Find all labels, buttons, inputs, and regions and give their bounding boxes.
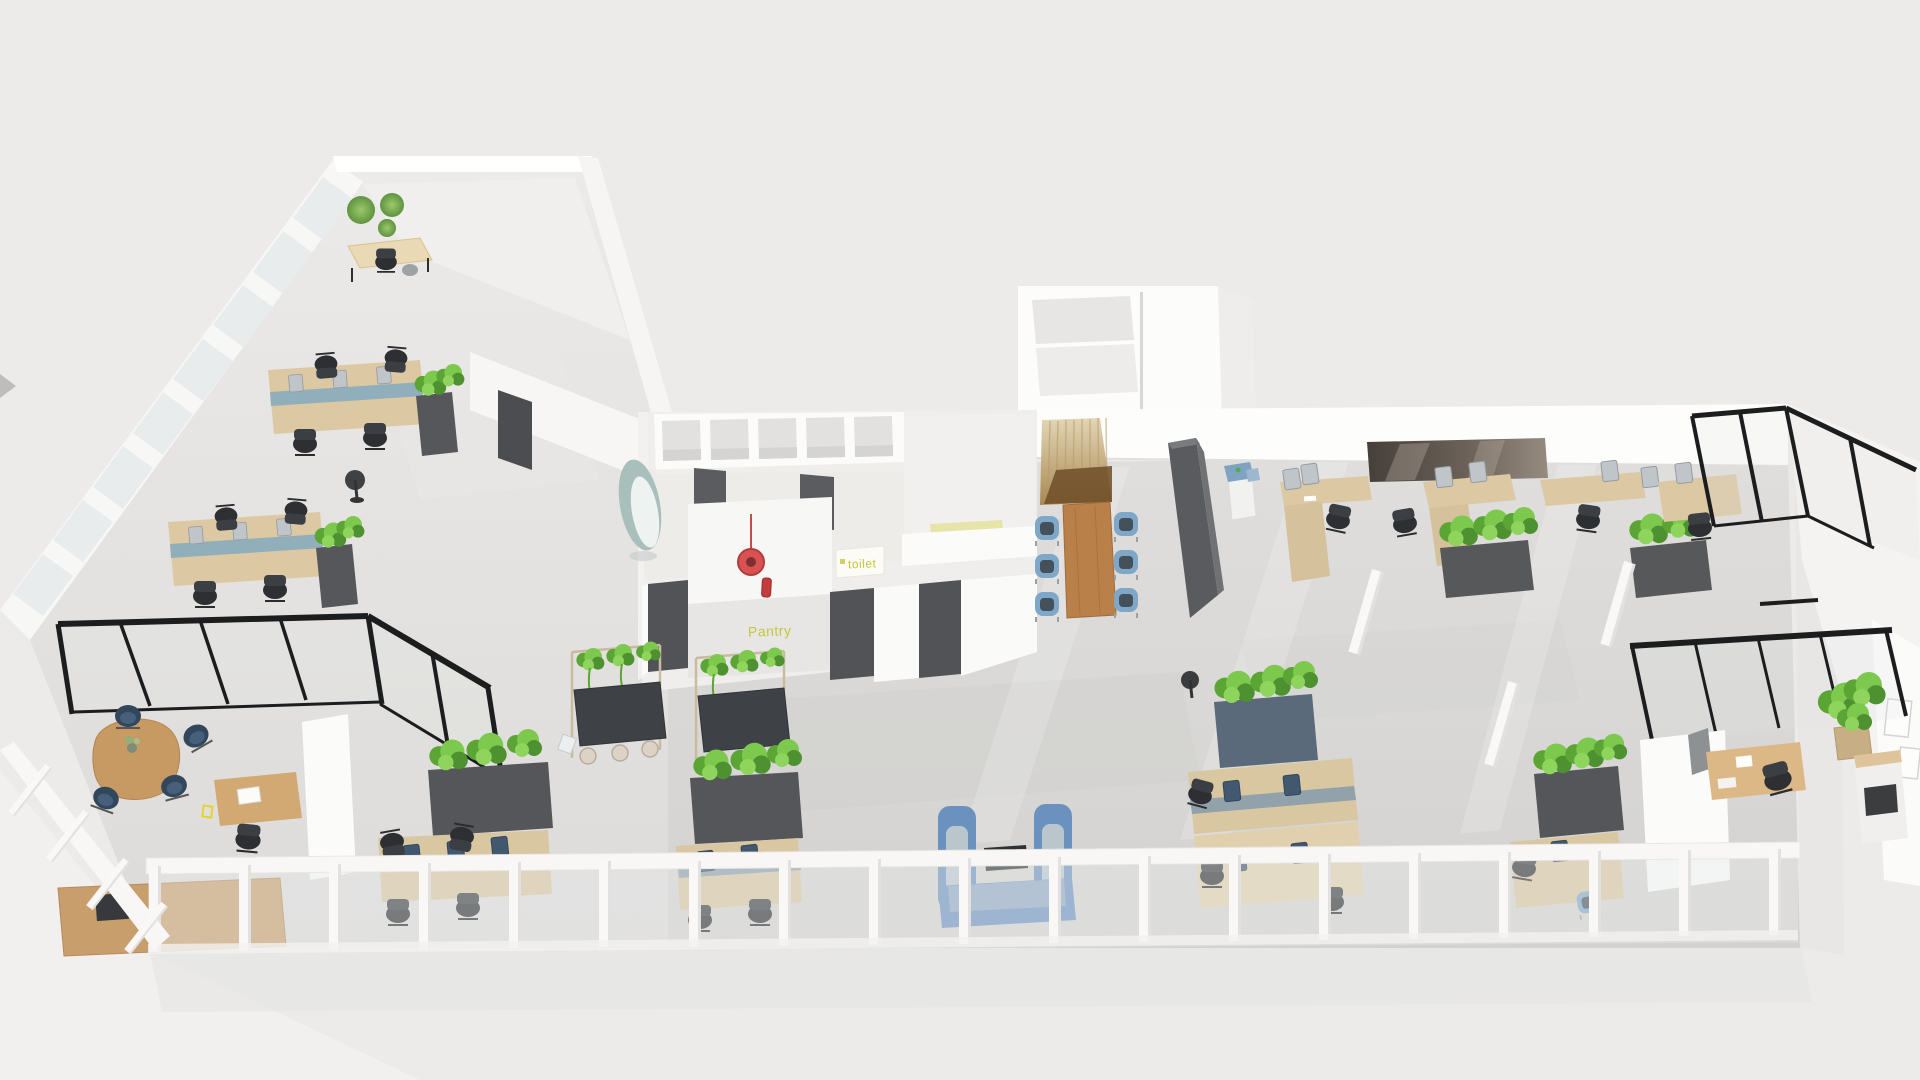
fire-extinguisher	[761, 578, 771, 597]
monitor	[1301, 463, 1320, 485]
conference-table	[1063, 502, 1116, 618]
moss-circle-icon	[378, 219, 396, 237]
monitor	[1223, 780, 1241, 802]
status-led-icon	[1236, 468, 1241, 473]
standing-table	[574, 682, 666, 746]
table-vase	[127, 743, 137, 753]
glass-panel	[60, 620, 380, 712]
toilet-pictogram-icon	[840, 559, 845, 564]
monitor	[188, 526, 203, 544]
planter-cabinet	[416, 392, 458, 456]
stool	[612, 745, 628, 761]
monitor	[1641, 466, 1659, 488]
floor-label-toilet: toilet	[848, 556, 877, 571]
monitor	[1283, 468, 1302, 490]
standing-table	[698, 688, 790, 752]
storage-room-block-top	[1018, 286, 1256, 416]
monitor	[1435, 466, 1453, 488]
papers	[1718, 777, 1737, 789]
planter-cabinet	[690, 772, 803, 844]
stool	[642, 741, 658, 757]
sideboard	[1854, 750, 1908, 844]
planter-cabinet	[1534, 766, 1624, 838]
moss-circle-icon	[347, 196, 375, 224]
dark-door	[919, 580, 961, 678]
floorplan-render: Pantry toilet	[0, 0, 1920, 1080]
papers	[1736, 755, 1753, 768]
monitor	[1601, 460, 1619, 482]
dark-door	[830, 588, 874, 680]
floor-label-pantry: Pantry	[748, 622, 792, 640]
monitor	[1675, 462, 1693, 484]
executive-desk	[1706, 742, 1806, 800]
monitor	[1283, 774, 1301, 796]
planter-cabinet	[316, 544, 358, 608]
building-shadow-bottom	[150, 942, 1812, 1012]
planter-cabinet	[1214, 694, 1318, 768]
moss-circle-icon	[380, 193, 404, 217]
focus-room-top-wall	[333, 156, 596, 172]
stool	[580, 748, 596, 764]
room-side-wall	[302, 714, 356, 880]
desk-return	[1284, 502, 1330, 582]
media-wall	[1367, 438, 1548, 482]
side-chair	[402, 264, 418, 276]
dark-door	[498, 390, 532, 470]
monitor	[288, 374, 303, 392]
planter-cabinet	[1630, 540, 1712, 598]
pantry-back-wall	[688, 497, 832, 604]
floorplan-viewport[interactable]: Pantry toilet	[0, 0, 1920, 1080]
laptop	[237, 787, 261, 805]
planter-cabinet	[1440, 540, 1534, 598]
planter-cabinet	[428, 762, 553, 836]
core-block: Pantry toilet	[638, 410, 1037, 692]
monitor	[1469, 461, 1487, 483]
keyboard	[1304, 496, 1316, 502]
